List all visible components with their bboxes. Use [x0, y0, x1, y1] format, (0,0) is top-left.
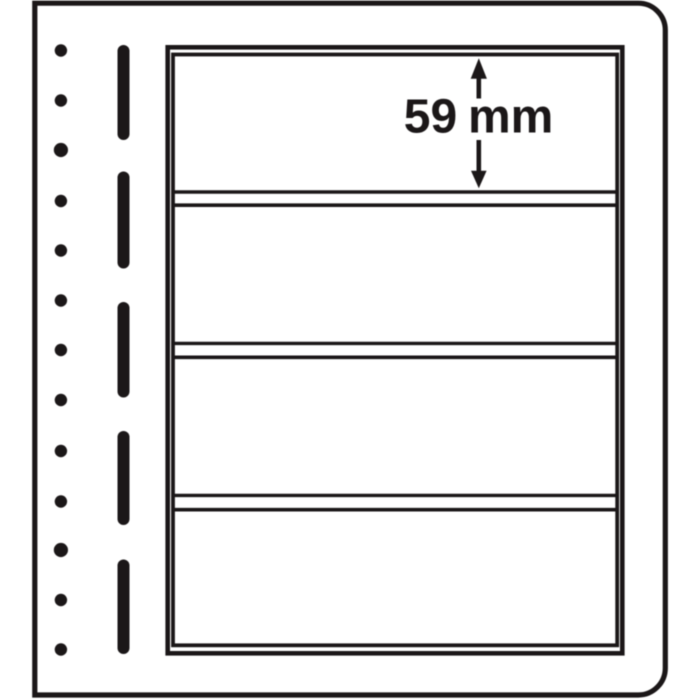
svg-text:59: 59: [404, 90, 457, 143]
svg-text:mm: mm: [468, 90, 553, 143]
